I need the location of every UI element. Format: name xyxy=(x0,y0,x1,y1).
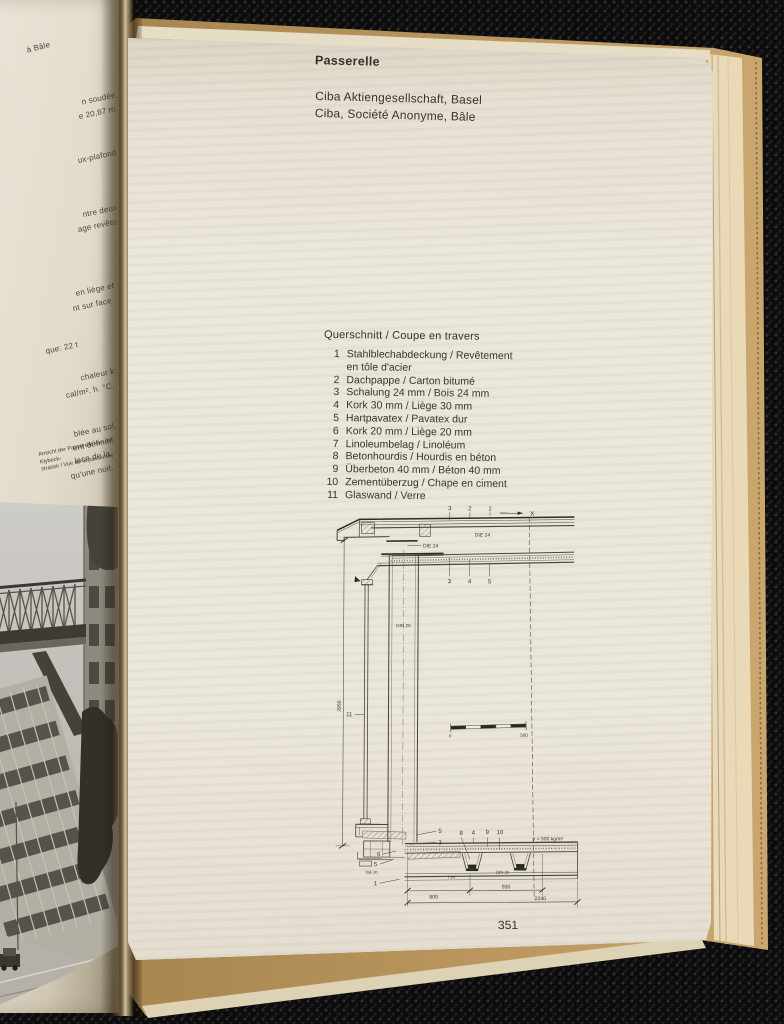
load-label: p = 500 kg/m² xyxy=(532,836,563,842)
legend-text: Schalung 24 mm / Bois 24 mm xyxy=(346,387,489,401)
floor-callout-8: 8 xyxy=(459,831,463,837)
left-text-fragment: à Bâle xyxy=(26,40,51,55)
legend-num: 4 xyxy=(323,399,339,412)
legend-text: Stahlblechabdeckung / Revêtement xyxy=(347,348,513,362)
roof-callout-2: 2 xyxy=(468,506,472,512)
legend-title: Querschnitt / Coupe en travers xyxy=(324,329,513,343)
legend-num: 1 xyxy=(324,348,340,361)
floor-callout-4: 4 xyxy=(472,830,476,836)
page-title: Passerelle xyxy=(315,53,380,69)
joist-label: DIN 20 xyxy=(496,870,510,875)
beam-span-label: DIE 24 xyxy=(475,533,491,539)
legend-num: 10 xyxy=(322,476,338,489)
legend-text: Linoleumbelag / Linoléum xyxy=(346,438,466,451)
scale-max: 500 xyxy=(520,733,528,738)
legend-num: 9 xyxy=(322,463,338,476)
floor-callout-1: 1 xyxy=(374,881,378,887)
legend-text: Kork 30 mm / Liège 30 mm xyxy=(346,399,472,413)
legend-text: en tôle d'acier xyxy=(347,361,412,374)
roof-callout-3: 3 xyxy=(448,506,452,512)
cross-section-drawing: 3 2 1 X DIE 24 DIE 24 3 4 5 DIN 20 11 29… xyxy=(329,499,663,923)
floor-callout-10: 10 xyxy=(497,830,504,836)
dim-2240: 2240 xyxy=(534,896,546,902)
legend-text: Kork 20 mm / Liège 20 mm xyxy=(346,425,472,439)
legend-num: 3 xyxy=(323,386,339,399)
ceiling-callout-5: 5 xyxy=(488,579,492,585)
floor-callout-5a: 5 xyxy=(438,829,442,835)
section-mark: X xyxy=(530,511,535,518)
right-page: Passerelle Ciba Aktiengesellschaft, Base… xyxy=(126,30,714,960)
page-number: 351 xyxy=(478,918,538,933)
dim-930: 930 xyxy=(502,884,511,890)
scale-zero: 0 xyxy=(449,733,452,738)
column-label: DIN 20 xyxy=(396,623,411,628)
legend-num: 7 xyxy=(323,437,339,450)
legend-text: Dachpappe / Carton bitumé xyxy=(346,374,475,388)
legend: Querschnitt / Coupe en travers 1Stahlble… xyxy=(322,329,513,504)
legend-text: Zementüberzug / Chape en ciment xyxy=(345,476,507,490)
legend-num: 5 xyxy=(323,412,339,425)
dim-600: 600 xyxy=(429,895,438,901)
steel-profile-label: I 14 xyxy=(448,875,456,880)
height-dimension: 2950 xyxy=(337,700,343,711)
page-subtitles: Ciba Aktiengesellschaft, Basel Ciba, Soc… xyxy=(315,88,483,126)
ceiling-callout-3: 3 xyxy=(448,579,452,585)
edge-profile-label: DIE 30 xyxy=(366,870,379,875)
subtitle-french: Ciba, Société Anonyme, Bâle xyxy=(315,105,482,126)
floor-callout-9: 9 xyxy=(486,830,490,836)
floor-callout-5b: 5 xyxy=(374,862,378,868)
legend-text: Betonhourdis / Hourdis en béton xyxy=(345,451,496,465)
glass-callout: 11 xyxy=(346,712,353,718)
legend-num: 6 xyxy=(323,425,339,438)
beam-edge-label: DIE 24 xyxy=(423,543,439,549)
legend-num: 2 xyxy=(323,373,339,386)
legend-num: 8 xyxy=(322,450,338,463)
legend-text: Überbeton 40 mm / Béton 40 mm xyxy=(345,463,500,477)
roof-callout-1: 1 xyxy=(488,507,492,513)
legend-text: Hartpavatex / Pavatex dur xyxy=(346,412,468,425)
left-text-fragment: que: 22 t xyxy=(45,340,79,356)
ceiling-callout-4: 4 xyxy=(468,579,472,585)
